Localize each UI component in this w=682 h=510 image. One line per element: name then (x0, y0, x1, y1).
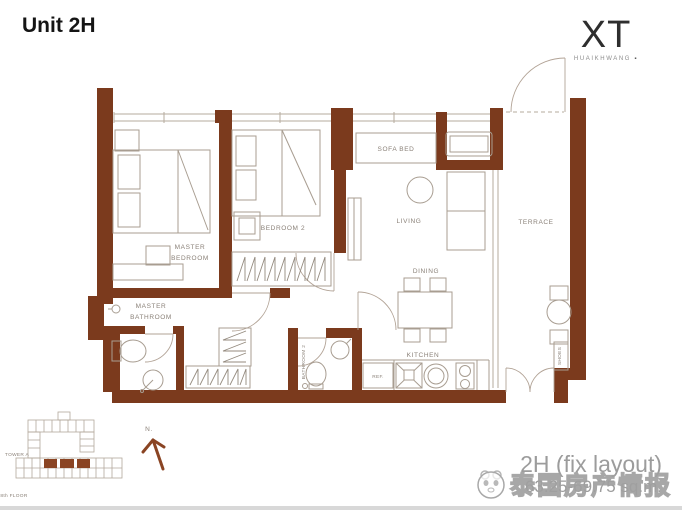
master-bathroom-door-arc (145, 334, 173, 362)
key-plan: TOWER A 8th FLOOR (0, 412, 122, 499)
hall-door-arc (358, 292, 396, 330)
compass: N. (143, 426, 164, 469)
highlighted-unit (77, 459, 90, 468)
slide: Unit 2H XT HUAIKHWANG ▪ (0, 0, 682, 510)
watermark-panda-icon (474, 467, 508, 501)
bedroom-2: BEDROOM 2 (232, 130, 320, 240)
master-bedroom-door-arc (232, 293, 270, 331)
label-master-bedroom-1: MASTER (175, 244, 206, 251)
label-living: LIVING (397, 218, 422, 225)
key-plan-tower-label: TOWER A (5, 452, 30, 458)
label-sofa-bed: SOFA BED (378, 146, 415, 153)
sofa-bed-room: SOFA BED (356, 132, 492, 163)
kitchen: REF. KITCHEN (362, 352, 489, 390)
master-bedroom: MASTER BEDROOM (113, 130, 210, 280)
watermark-text: 泰国房产情报 (510, 466, 672, 502)
label-kitchen: KITCHEN (407, 352, 440, 359)
north-arrow-icon (143, 440, 164, 469)
label-master-bedroom-2: BEDROOM (171, 255, 209, 262)
compass-north-label: N. (145, 426, 153, 433)
label-bedroom2: BEDROOM 2 (261, 225, 305, 232)
toilet-2 (306, 362, 326, 386)
label-master-bathroom-1: MASTER (136, 303, 167, 310)
label-bathroom2: BATHROOM 2 (301, 345, 307, 379)
label-shoes: SHOES (557, 347, 563, 365)
key-plan-floor-label: 8th FLOOR (0, 493, 27, 499)
highlighted-unit (44, 459, 57, 468)
label-dining: DINING (413, 268, 439, 275)
toilet (120, 340, 146, 362)
highlighted-unit (60, 459, 74, 468)
dining-area: DINING (398, 268, 452, 342)
living-room: LIVING (348, 172, 485, 260)
terrace: SHOES TERRACE (518, 219, 571, 370)
watermark: 泰国房产情报 (474, 466, 672, 502)
entry-door-arc (511, 58, 565, 112)
label-terrace: TERRACE (518, 219, 553, 226)
basin-icon (112, 305, 120, 313)
label-ref: REF. (372, 374, 384, 380)
slide-bottom-border (0, 506, 682, 510)
label-master-bathroom-2: BATHROOM (130, 314, 172, 321)
floor-plan: MASTER BEDROOM BEDROOM 2 SOFA BED (0, 0, 682, 510)
